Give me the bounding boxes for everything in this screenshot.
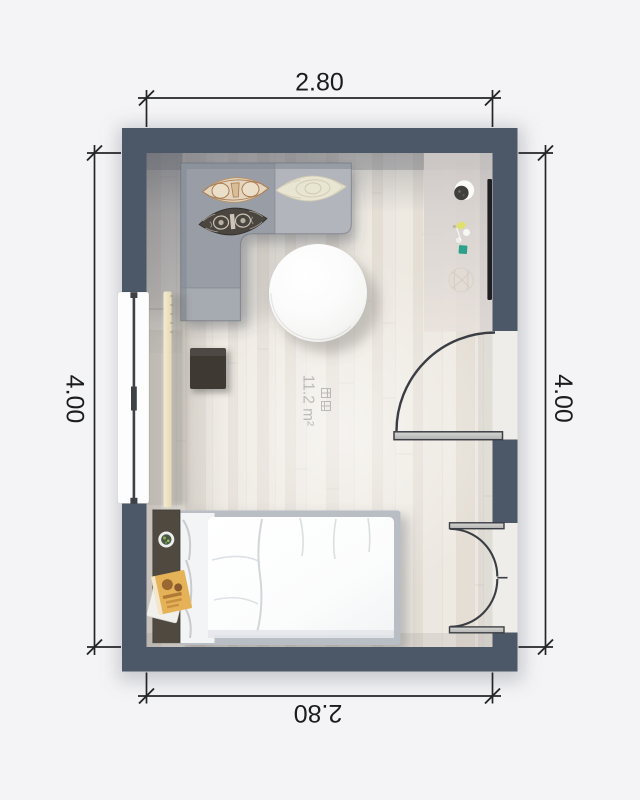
svg-text:4.00: 4.00 <box>61 375 89 424</box>
svg-text:4.00: 4.00 <box>549 374 577 423</box>
svg-text:2.80: 2.80 <box>294 699 343 727</box>
svg-text:2.80: 2.80 <box>295 69 344 97</box>
svg-text:11.2 m²: 11.2 m² <box>300 375 317 426</box>
